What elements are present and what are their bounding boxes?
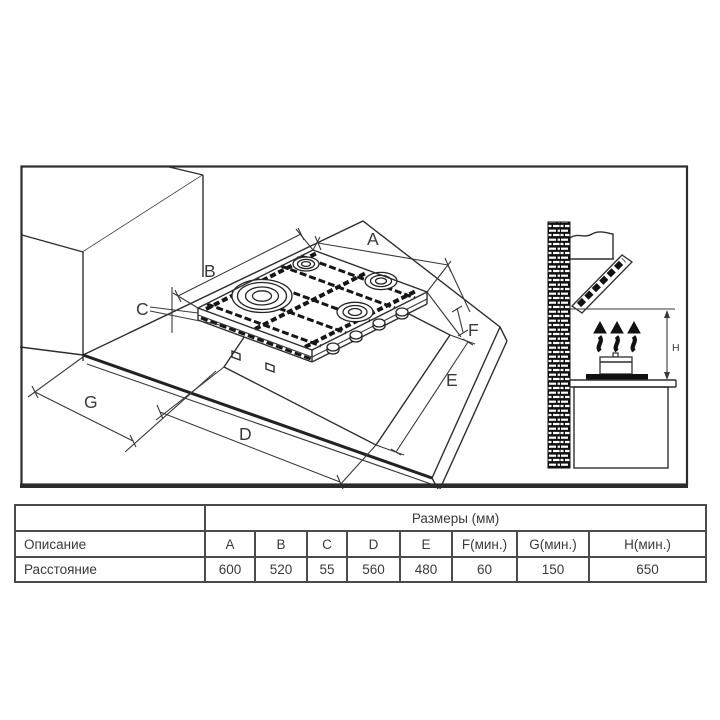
installation-diagram: A B C D E F G H: [20, 165, 690, 489]
col-header-c: C: [307, 531, 347, 557]
value-c: 55: [307, 557, 347, 582]
col-header-a: A: [205, 531, 255, 557]
col-header-h-min: H(мин.): [589, 531, 706, 557]
value-e: 480: [400, 557, 452, 582]
cooker-hood: [572, 255, 632, 313]
side-view: H: [548, 222, 680, 468]
table-columns-row: Описание A B C D E F(мин.) G(мин.) H(мин…: [15, 531, 706, 557]
diagram-canvas: A B C D E F G H: [20, 165, 690, 489]
hood-duct: [570, 232, 613, 259]
value-d: 560: [347, 557, 400, 582]
value-f: 60: [452, 557, 517, 582]
table-corner-cell: [15, 505, 205, 531]
brick-wall: [548, 222, 570, 468]
dim-label-d: D: [239, 424, 252, 444]
burner-small-back: [293, 257, 319, 271]
dim-label-g: G: [84, 392, 98, 412]
pot-on-hob: [586, 353, 648, 380]
hob-slab: [586, 374, 648, 380]
base-cabinet: [574, 387, 668, 468]
burner-large: [232, 280, 292, 313]
dim-label-a: A: [367, 229, 379, 249]
value-h: 650: [589, 557, 706, 582]
dim-label-b: B: [204, 261, 216, 281]
dim-label-c: C: [136, 299, 149, 319]
value-g: 150: [517, 557, 589, 582]
dimensions-table-wrapper: Размеры (мм) Описание A B C D E F(мин.) …: [14, 504, 707, 583]
dim-label-e: E: [446, 370, 458, 390]
h-dimension: H: [664, 310, 680, 380]
table-group-header: Размеры (мм): [205, 505, 706, 531]
steam-arrows-icon: [594, 322, 640, 351]
col-header-b: B: [255, 531, 307, 557]
dim-label-h: H: [672, 342, 680, 354]
burner-front-right: [337, 302, 373, 321]
value-b: 520: [255, 557, 307, 582]
table-values-row: Расстояние 600 520 55 560 480 60 150 650: [15, 557, 706, 582]
value-a: 600: [205, 557, 255, 582]
dim-label-f: F: [468, 320, 479, 340]
col-header-f-min: F(мин.): [452, 531, 517, 557]
col-header-d: D: [347, 531, 400, 557]
row-label-distance: Расстояние: [15, 557, 205, 582]
manual-page: A B C D E F G H: [0, 0, 720, 720]
row-label-description: Описание: [15, 531, 205, 557]
dimensions-table: Размеры (мм) Описание A B C D E F(мин.) …: [14, 504, 707, 583]
table-group-header-row: Размеры (мм): [15, 505, 706, 531]
col-header-e: E: [400, 531, 452, 557]
col-header-g-min: G(мин.): [517, 531, 589, 557]
